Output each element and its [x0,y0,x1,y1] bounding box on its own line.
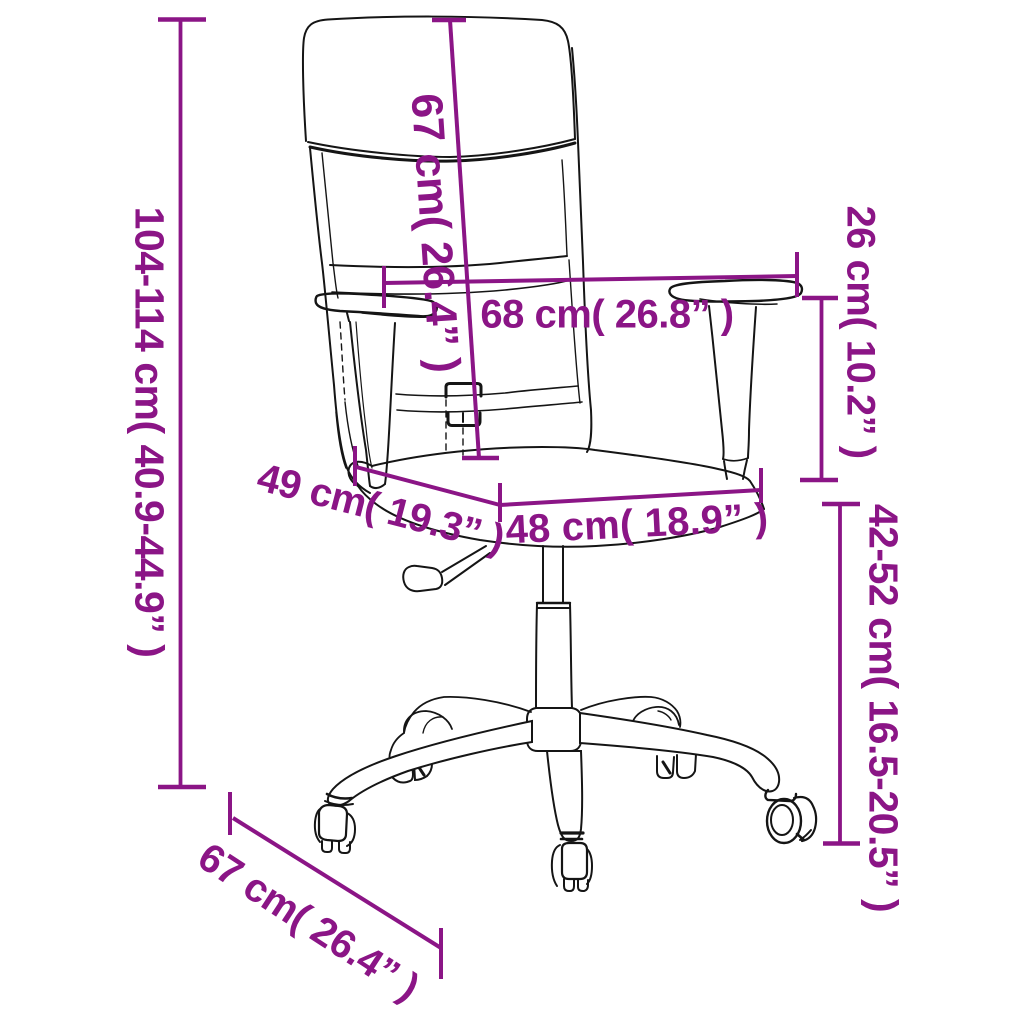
svg-text:68 cm( 26.8” ): 68 cm( 26.8” ) [480,293,733,337]
svg-text:26 cm( 10.2” ): 26 cm( 10.2” ) [839,205,883,458]
svg-text:104-114 cm( 40.9-44.9” ): 104-114 cm( 40.9-44.9” ) [127,207,173,658]
svg-text:42-52 cm( 16.5-20.5” ): 42-52 cm( 16.5-20.5” ) [861,504,907,912]
